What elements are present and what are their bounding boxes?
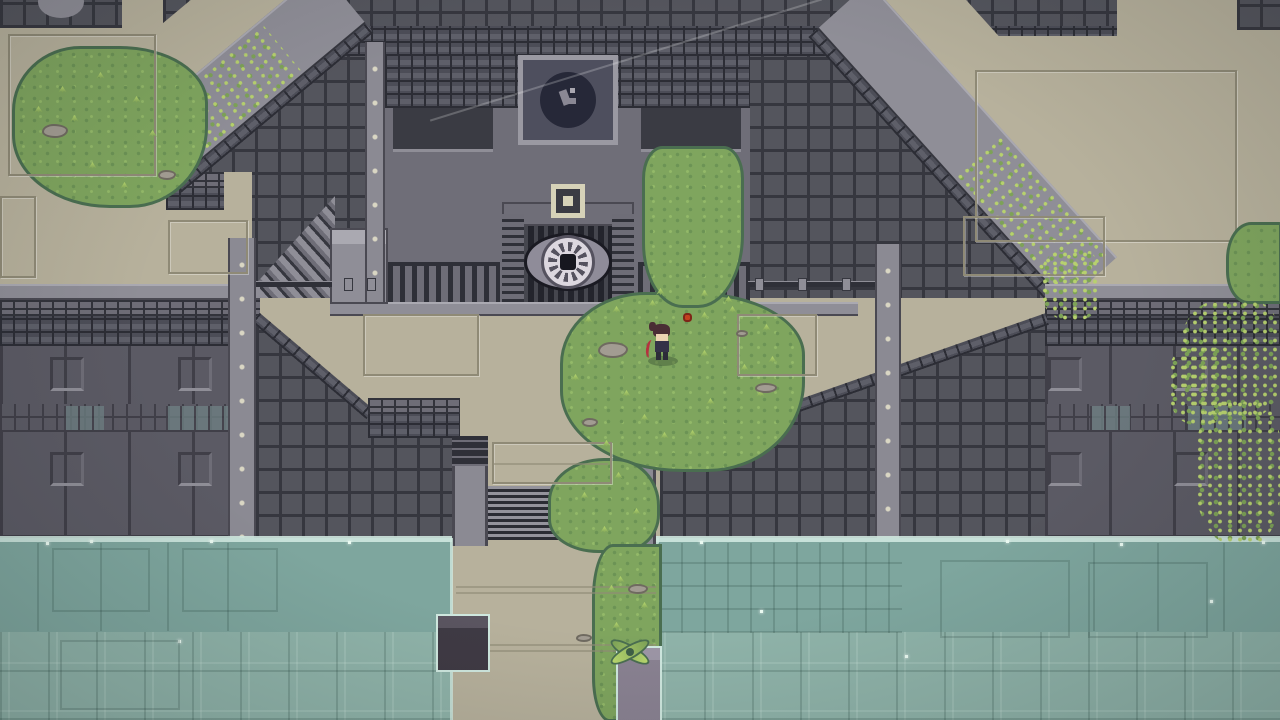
left-wall-panels [0, 346, 260, 538]
door-pillar-left [502, 214, 524, 310]
wall-plaque [518, 55, 618, 145]
red-flower [683, 313, 692, 322]
grass-topleft [12, 46, 208, 208]
stair-pillar-left [452, 466, 488, 546]
water-pillar-left [438, 616, 488, 670]
submerged-grid [658, 543, 902, 633]
water-right-deep [656, 632, 1280, 720]
right-wall-tiles [1045, 316, 1280, 346]
left-wall-greek [0, 300, 260, 316]
right-wall-greek [1045, 300, 1280, 316]
colonnade-left [388, 262, 500, 304]
grass-lower [548, 458, 660, 553]
door-emblem-core [563, 196, 573, 206]
water-left-deep [0, 632, 452, 720]
pipe-left [256, 281, 332, 287]
walkway-strip-right [875, 244, 901, 538]
game-viewport[interactable] [0, 0, 1280, 720]
hero-leg-left [656, 352, 661, 360]
left-wall-tiles [0, 316, 260, 346]
pipe-right [748, 281, 877, 287]
hero-leg-right [663, 352, 668, 360]
plaque-glyph-3 [570, 88, 575, 93]
water-pillar-left-top [438, 616, 488, 628]
eye-pupil [560, 254, 576, 270]
right-wall-band [1045, 404, 1280, 432]
corner-block-right [1237, 0, 1280, 30]
waterline-right [656, 536, 1280, 542]
hero-character [646, 320, 680, 368]
grass-door-curtain [642, 146, 744, 308]
left-wall-band [0, 404, 260, 432]
bastion-left-tiles [368, 414, 460, 438]
stair-pillar-left-cap [452, 436, 488, 466]
bastion-left-greek [368, 398, 460, 414]
door-emblem [551, 184, 585, 218]
walkway-strip-left [228, 238, 256, 538]
left-wall-ledge [0, 284, 260, 300]
walkway-strip-upper [365, 42, 385, 302]
hero-torso [655, 341, 669, 352]
waterline-left [0, 536, 452, 542]
x-plant [608, 632, 652, 672]
x-plant-center [626, 648, 634, 656]
right-wall-ledge [1045, 284, 1280, 300]
right-wall-panels [1045, 346, 1280, 538]
plaque-glyph-2 [565, 98, 576, 104]
eye-emblem [524, 233, 612, 291]
